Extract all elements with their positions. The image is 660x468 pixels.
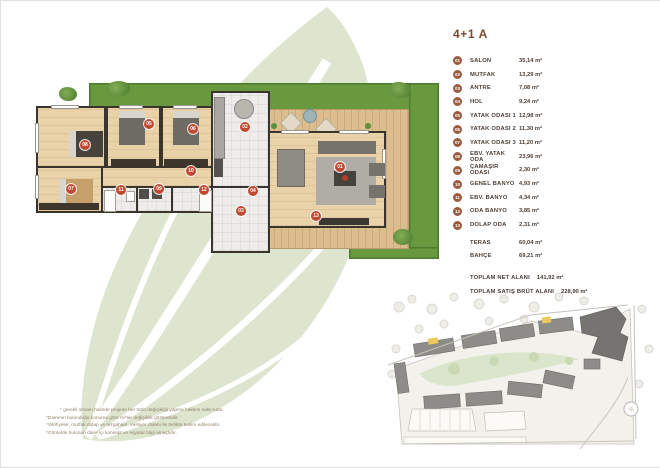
plan-marker-dolap-oda: 13 (311, 211, 321, 221)
plan-marker-salon: 01 (335, 162, 345, 172)
unit-legend: 4+1 A 01 SALON 35,14 m² 02 MUTFAK 13,29 … (453, 27, 655, 299)
legend-number-badge: 03 (453, 84, 462, 93)
potted-plant (271, 123, 277, 129)
legend-number-badge: 04 (453, 97, 462, 106)
legend-number-badge: 06 (453, 125, 462, 134)
legend-room-label: YATAK ODASI 2 (470, 126, 519, 132)
legend-room-label: ANTRE (470, 85, 519, 91)
legend-room-area: 69,21 m² (519, 253, 542, 259)
wardrobe (39, 203, 99, 210)
legend-number-badge: 10 (453, 180, 462, 189)
legend-room-area: 4,93 m² (519, 181, 539, 187)
legend-row: BAHÇE 69,21 m² (453, 250, 655, 264)
legend-number-badge: 05 (453, 111, 462, 120)
total-label: TOPLAM SATIŞ BRÜT ALANI (470, 289, 554, 295)
wardrobe (111, 159, 156, 166)
floor-plan: 01 02 03 04 05 06 07 08 09 10 11 12 13 (31, 71, 446, 296)
legend-row: 09 ÇAMAŞIR ODASI 2,30 m² (453, 164, 655, 178)
site-roundabout-center (629, 407, 634, 412)
total-label: TOPLAM NET ALANI (470, 275, 530, 281)
legend-number-badge: 08 (453, 152, 462, 161)
legend-room-area: 9,24 m² (519, 99, 539, 105)
window (35, 175, 39, 199)
legend-number-badge: 12 (453, 207, 462, 216)
toilet (126, 191, 135, 202)
room-entry (211, 186, 270, 253)
legend-row: 13 DOLAP ODA 2,31 m² (453, 218, 655, 232)
legend-row: TERAS 60,04 m² (453, 236, 655, 250)
total-row: TOPLAM NET ALANI 141,92 m² (453, 271, 655, 285)
plan-marker-camasir: 09 (154, 184, 164, 194)
site-parking-lots (408, 409, 526, 431)
legend-row: 03 ANTRE 7,08 m² (453, 81, 655, 95)
plan-marker-hol: 04 (248, 186, 258, 196)
brochure-page: 01 02 03 04 05 06 07 08 09 10 11 12 13 4… (0, 0, 660, 468)
kitchen-appliance (214, 159, 223, 177)
window (35, 123, 39, 153)
legend-row: 01 SALON 35,14 m² (453, 54, 655, 68)
legend-number-badge: 07 (453, 138, 462, 147)
legend-badge-spacer (453, 238, 462, 247)
legend-row: 05 YATAK ODASI 1 12,98 m² (453, 109, 655, 123)
decor-accent (342, 175, 348, 181)
legend-row: 06 YATAK ODASI 2 11,30 m² (453, 122, 655, 136)
legend-room-area: 3,85 m² (519, 208, 539, 214)
legend-room-label: HOL (470, 99, 519, 105)
legend-row: 04 HOL 9,24 m² (453, 95, 655, 109)
legend-room-label: EBV. BANYO (470, 195, 519, 201)
deck-table (303, 109, 317, 123)
legend-row: 02 MUTFAK 13,29 m² (453, 68, 655, 82)
window (281, 130, 309, 134)
tv-unit (319, 218, 369, 225)
footnote-line: *Dairenin bulunduğu konuma göre m²'ler d… (46, 415, 271, 423)
window (173, 105, 197, 109)
legend-room-area: 2,30 m² (519, 167, 539, 173)
legend-row: 08 EBV. YATAK ODA 23,96 m² (453, 150, 655, 164)
total-row: TOPLAM SATIŞ BRÜT ALANI 228,90 m² (453, 285, 655, 299)
dining-table (277, 149, 305, 187)
legend-row: 11 EBV. BANYO 4,34 m² (453, 191, 655, 205)
legend-room-area: 13,29 m² (519, 72, 542, 78)
legend-row: 10 GENEL BANYO 4,93 m² (453, 177, 655, 191)
legend-room-area: 2,31 m² (519, 222, 539, 228)
kitchen-counter (214, 97, 225, 159)
footnote-line: * gerekli olması halinde projede her tür… (46, 407, 271, 415)
legend-room-label: SALON (470, 58, 519, 64)
armchair (369, 163, 385, 176)
bathtub (104, 190, 116, 212)
garden-lawn-right (409, 83, 439, 259)
plan-marker-antre: 03 (236, 206, 246, 216)
legend-room-label: TERAS (470, 240, 519, 246)
plan-marker-oda-banyo: 12 (199, 185, 209, 195)
legend-room-area: 60,04 m² (519, 240, 542, 246)
wardrobe (164, 159, 208, 166)
window (339, 130, 369, 134)
legend-badge-spacer (453, 252, 462, 261)
legend-room-area: 7,08 m² (519, 85, 539, 91)
window (119, 105, 143, 109)
garden-plant (59, 87, 77, 101)
legend-totals: TOPLAM NET ALANI 141,92 m² TOPLAM SATIŞ … (453, 271, 655, 298)
disclaimer-footnotes: * gerekli olması halinde projede her tür… (46, 407, 271, 438)
bed (119, 111, 145, 145)
potted-plant (365, 123, 371, 129)
site-plan-map (384, 289, 656, 459)
plan-marker-yatak1: 05 (144, 119, 154, 129)
legend-room-area: 4,34 m² (519, 195, 539, 201)
legend-number-badge: 02 (453, 70, 462, 79)
legend-number-badge: 09 (453, 166, 462, 175)
legend-room-label: EBV. YATAK ODA (470, 151, 519, 163)
page-title: 4+1 A (453, 27, 655, 41)
legend-number-badge: 11 (453, 193, 462, 202)
total-value: 141,92 m² (537, 275, 563, 281)
legend-number-badge: 13 (453, 221, 462, 230)
legend-room-area: 23,96 m² (519, 154, 542, 160)
legend-room-area: 35,14 m² (519, 58, 542, 64)
bed (59, 179, 93, 203)
legend-room-label: BAHÇE (470, 253, 519, 259)
footnote-line: *Görselde bulunan daire içi konsept ve e… (46, 430, 271, 438)
total-value: 228,90 m² (561, 289, 587, 295)
legend-room-label: MUTFAK (470, 72, 519, 78)
armchair (369, 185, 385, 198)
legend-row: 12 ODA BANYO 3,85 m² (453, 205, 655, 219)
plan-marker-genel-banyo: 10 (186, 166, 196, 176)
legend-room-area: 11,20 m² (519, 140, 542, 146)
footnote-line: *Vitrifiyeler, mutfak dolap ve tezgahlar… (46, 422, 271, 430)
legend-room-label: GENEL BANYO (470, 181, 519, 187)
plan-marker-yatak2: 06 (188, 124, 198, 134)
window (51, 105, 79, 109)
legend-room-area: 12,98 m² (519, 113, 542, 119)
legend-row: 07 YATAK ODASI 3 11,20 m² (453, 136, 655, 150)
plan-marker-ebv-banyo: 11 (116, 185, 126, 195)
washing-machine (139, 189, 149, 199)
plan-marker-ebv-yatak: 08 (80, 140, 90, 150)
legend-room-label: YATAK ODASI 1 (470, 113, 519, 119)
legend-room-label: DOLAP ODA (470, 222, 519, 228)
legend-room-area: 11,30 m² (519, 126, 542, 132)
legend-room-label: ODA BANYO (470, 208, 519, 214)
legend-number-badge: 01 (453, 56, 462, 65)
legend-room-label: YATAK ODASI 3 (470, 140, 519, 146)
site-highlight-marker (542, 316, 552, 323)
legend-room-label: ÇAMAŞIR ODASI (470, 164, 519, 176)
kitchen-table (234, 99, 254, 119)
legend-extras: TERAS 60,04 m² BAHÇE 69,21 m² (453, 236, 655, 263)
sofa (318, 141, 376, 154)
plan-marker-mutfak: 02 (240, 122, 250, 132)
plan-marker-yatak3: 07 (66, 184, 76, 194)
